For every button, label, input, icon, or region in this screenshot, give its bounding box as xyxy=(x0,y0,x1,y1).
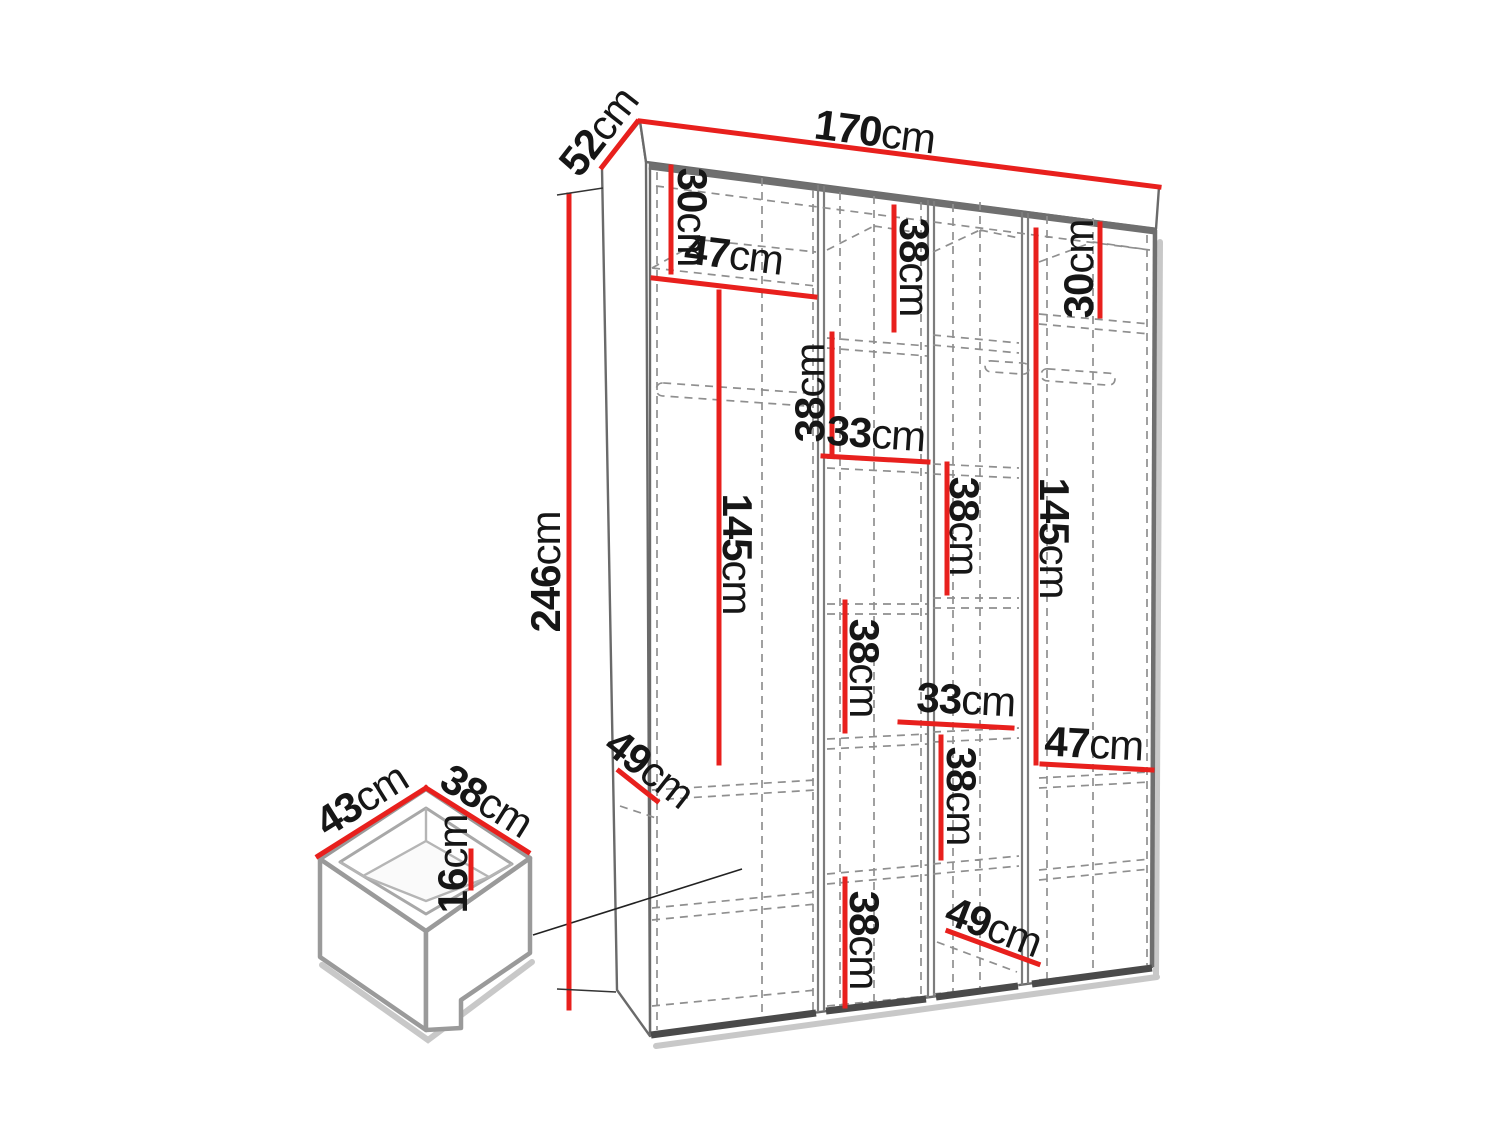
dim-label-midright-lower-38: 38cm xyxy=(939,747,986,846)
wardrobe-left-side-panel xyxy=(602,121,650,1036)
dim-label-drawer-height-16: 16cm xyxy=(429,815,476,914)
dim-label-midright-upper-38: 38cm xyxy=(942,477,989,576)
interior-right-edge xyxy=(1152,230,1155,967)
diagram-canvas: 170cm 52cm 246cm 30cm 47cm 145cm 49cm 38… xyxy=(0,0,1500,1125)
dim-label-mid-width-33-upper: 33cm xyxy=(825,406,927,460)
dim-label-height: 246cm xyxy=(522,511,569,632)
dim-label-midright-top-38: 38cm xyxy=(892,218,939,317)
dim-label-mid-bottom-38: 38cm xyxy=(842,891,889,990)
dim-label-mid-middle-38: 38cm xyxy=(842,619,889,718)
dim-label-right-hanging-145: 145cm xyxy=(1032,477,1079,598)
wardrobe-dimension-diagram: 170cm 52cm 246cm 30cm 47cm 145cm 49cm 38… xyxy=(0,0,1500,1125)
dim-label-right-top-30: 30cm xyxy=(1055,220,1102,319)
dim-label-mid-upper-38: 38cm xyxy=(786,344,833,443)
dim-label-mid-width-33-lower: 33cm xyxy=(915,673,1016,725)
dim-label-right-width-47: 47cm xyxy=(1043,717,1144,769)
dim-label-left-hanging-145: 145cm xyxy=(715,493,762,614)
